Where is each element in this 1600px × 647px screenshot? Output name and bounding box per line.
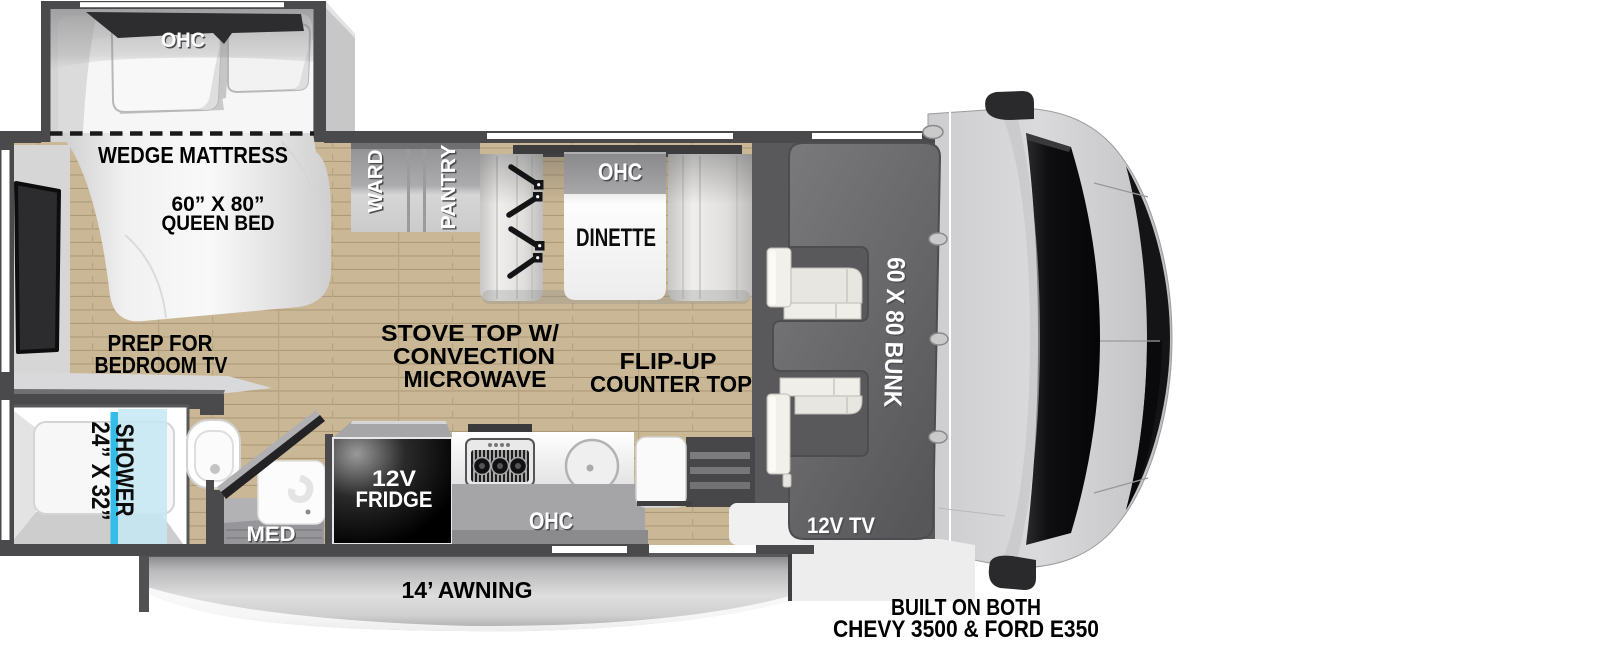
svg-text:DINETTE: DINETTE bbox=[576, 224, 656, 252]
svg-text:FRIDGE: FRIDGE bbox=[356, 487, 433, 512]
svg-text:COUNTER TOP: COUNTER TOP bbox=[590, 371, 752, 397]
svg-text:QUEEN BED: QUEEN BED bbox=[162, 212, 275, 235]
svg-text:WEDGE MATTRESS: WEDGE MATTRESS bbox=[98, 142, 288, 168]
svg-text:60 X 80 BUNK: 60 X 80 BUNK bbox=[878, 257, 910, 408]
svg-text:WARD: WARD bbox=[365, 150, 387, 213]
svg-text:MICROWAVE: MICROWAVE bbox=[404, 366, 547, 392]
svg-text:OHC: OHC bbox=[161, 29, 205, 52]
svg-text:PANTRY: PANTRY bbox=[438, 144, 460, 230]
svg-text:OHC: OHC bbox=[529, 508, 573, 535]
svg-text:24” X 32”: 24” X 32” bbox=[86, 422, 114, 521]
svg-text:BEDROOM TV: BEDROOM TV bbox=[95, 352, 229, 378]
svg-text:12V TV: 12V TV bbox=[807, 513, 875, 538]
svg-text:MED: MED bbox=[247, 523, 296, 546]
svg-text:14’ AWNING: 14’ AWNING bbox=[402, 577, 533, 603]
svg-text:SHOWER: SHOWER bbox=[110, 424, 138, 517]
svg-text:CHEVY 3500 & FORD E350: CHEVY 3500 & FORD E350 bbox=[833, 616, 1099, 643]
svg-text:OHC: OHC bbox=[598, 159, 642, 186]
